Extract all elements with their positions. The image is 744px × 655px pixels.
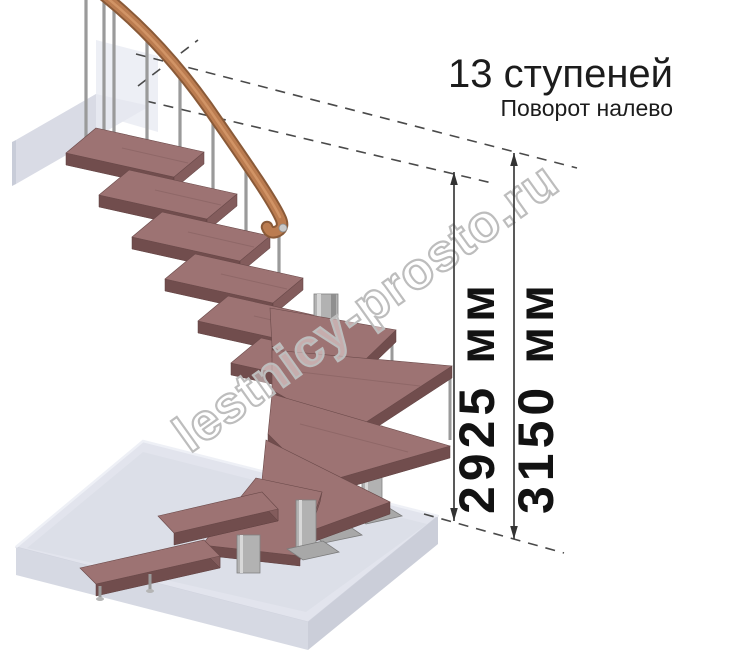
- page-title: 13 ступеней: [448, 52, 673, 96]
- staircase-diagram: lestnicy-prosto.ru 2925 мм 3150 мм 13 ст…: [0, 0, 744, 655]
- floor-level-dashed-line: [424, 514, 564, 553]
- dimension-label-2925: 2925 мм: [449, 280, 505, 514]
- rail-end-cap: [279, 224, 287, 232]
- landing-level-dashed-line: [146, 101, 492, 183]
- dimension-label-3150: 3150 мм: [508, 280, 564, 514]
- staircase-render: lestnicy-prosto.ru 2925 мм 3150 мм 13 ст…: [0, 0, 744, 655]
- page-subtitle: Поворот налево: [500, 95, 673, 121]
